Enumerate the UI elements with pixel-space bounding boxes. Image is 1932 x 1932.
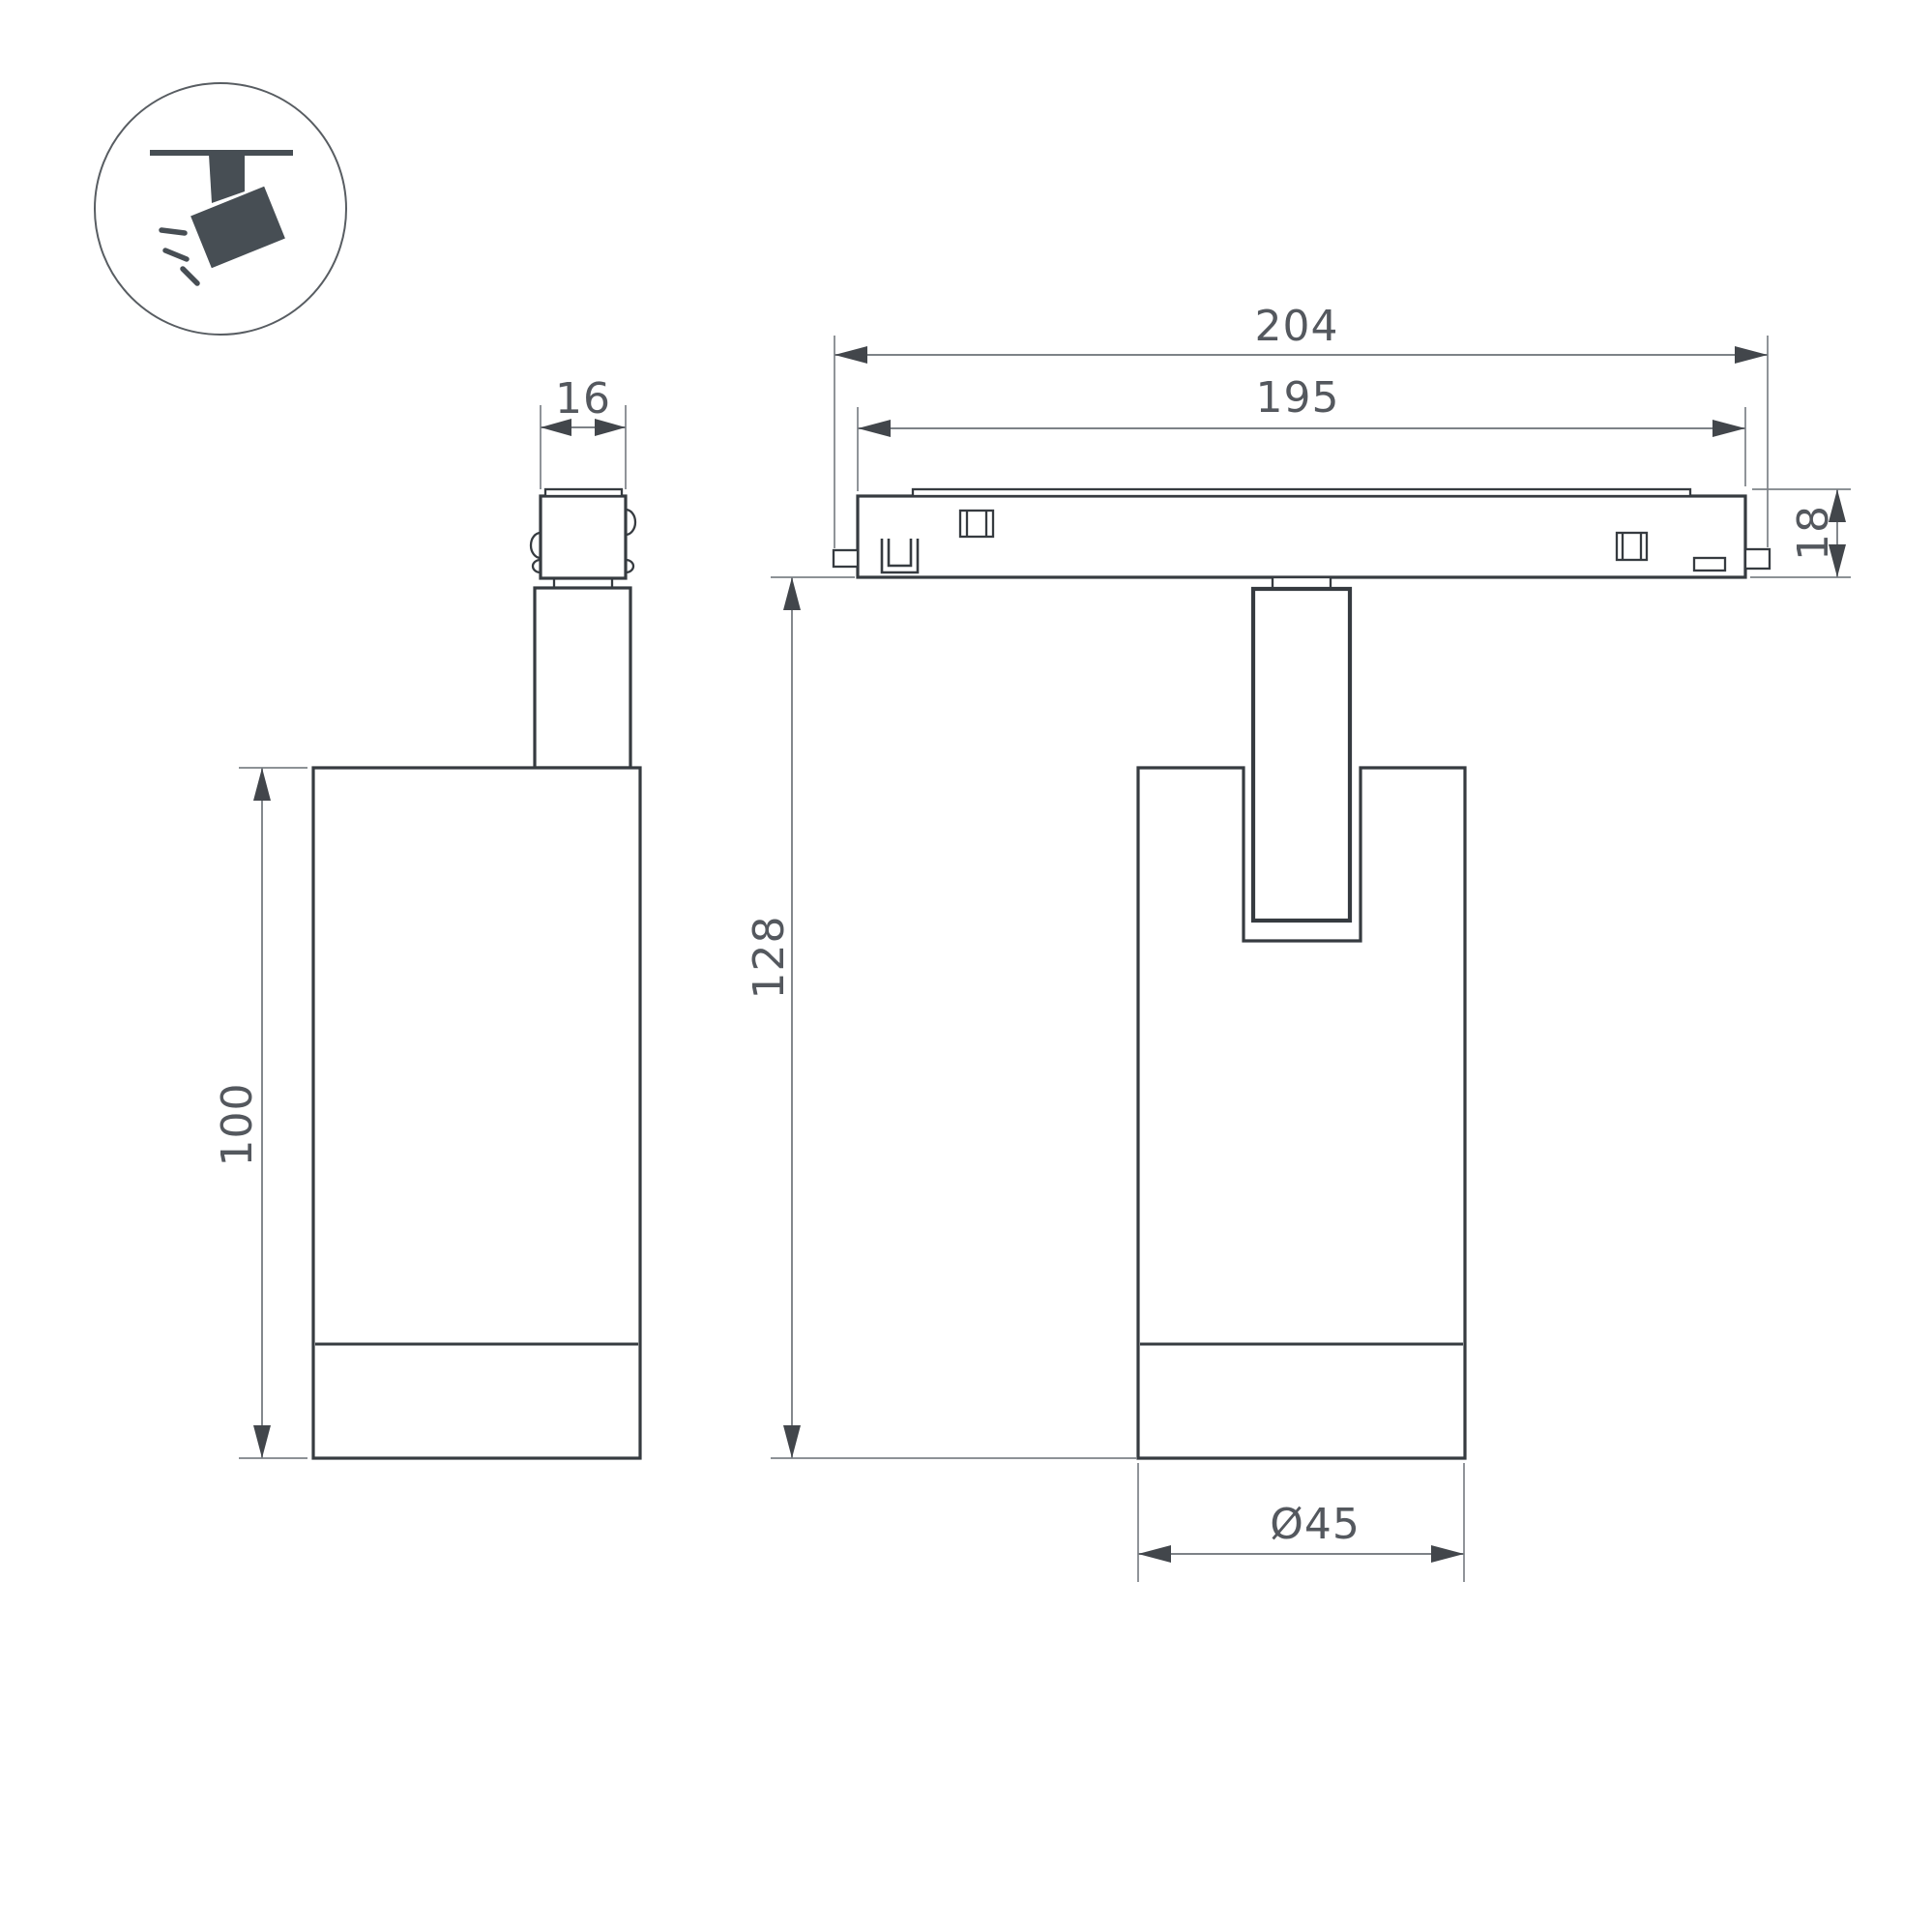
- side-view-body: [313, 768, 640, 1458]
- product-icon: [95, 83, 346, 335]
- dim-body-height-label: 100: [213, 1083, 262, 1167]
- dim-arrow-left: [1138, 1545, 1171, 1563]
- dim-arrow-right: [1712, 420, 1745, 437]
- front-view-rail-window-left: [960, 511, 993, 537]
- dim-track-length-outer-label: 204: [1255, 302, 1339, 351]
- dim-arrow-down: [783, 1425, 801, 1458]
- dim-body-diameter: Ø45: [1138, 1463, 1464, 1582]
- front-view-rail-left-tab: [834, 550, 858, 567]
- dim-arrow-down: [253, 1425, 271, 1458]
- side-view-stem: [535, 588, 630, 768]
- side-view: [313, 489, 640, 1458]
- side-view-connector-plate: [545, 489, 622, 496]
- dimension-drawing: 16 204 195 18 100 12: [0, 0, 1932, 1932]
- dim-track-length-inner-label: 195: [1256, 373, 1340, 423]
- dim-arrow-left: [834, 346, 867, 364]
- front-view-rail-slot: [1694, 558, 1725, 571]
- dim-track-height-label: 18: [1789, 505, 1838, 561]
- front-view: [834, 489, 1770, 1458]
- icon-light-ray-1: [161, 230, 185, 233]
- front-view-stem: [1253, 589, 1350, 921]
- dim-body-diameter-label: Ø45: [1270, 1500, 1361, 1549]
- front-view-rail-top-strip: [913, 489, 1690, 496]
- dim-arrow-up: [783, 577, 801, 610]
- front-view-rail-right-tab: [1745, 549, 1770, 569]
- dim-track-length-inner: 195: [858, 373, 1745, 491]
- dim-arrow-right: [1735, 346, 1768, 364]
- dim-total-height-label: 128: [745, 916, 794, 1000]
- dim-body-height: 100: [213, 768, 307, 1458]
- dim-arrow-up: [253, 768, 271, 801]
- dim-total-height: 128: [745, 577, 1136, 1458]
- front-view-rail-window-right: [1617, 533, 1647, 560]
- dim-arrow-right: [1431, 1545, 1464, 1563]
- dim-connector-width: 16: [541, 374, 626, 489]
- dim-arrow-left: [858, 420, 891, 437]
- dim-connector-width-label: 16: [555, 374, 611, 424]
- side-view-track-connector: [541, 496, 626, 578]
